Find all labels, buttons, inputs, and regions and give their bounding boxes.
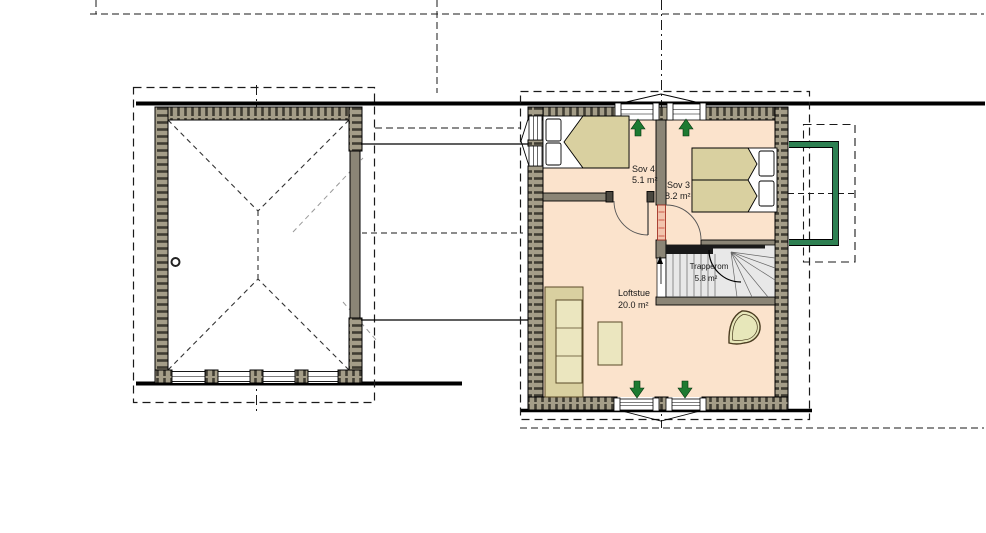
house-wall-west-2 bbox=[528, 140, 543, 146]
sofa-cushions bbox=[556, 300, 582, 383]
garage-wall-east-top bbox=[349, 107, 362, 151]
garage-wall-south-3 bbox=[250, 370, 263, 383]
window-south-2 bbox=[668, 399, 702, 410]
wall-center-stub bbox=[656, 240, 666, 258]
room-area-sov3: 8.2 m² bbox=[665, 191, 691, 201]
pillow bbox=[759, 151, 774, 176]
window-west-2 bbox=[529, 146, 542, 166]
duvet bbox=[692, 148, 757, 180]
window-jamb bbox=[653, 103, 659, 120]
room-label-sov4: Sov 4 bbox=[632, 164, 655, 174]
garage bbox=[134, 88, 529, 403]
floor-plan-canvas: Sov 4 5.1 m² Sov 3 8.2 m² Loftstue 20.0 … bbox=[0, 0, 986, 533]
room-label-loftstue: Loftstue bbox=[618, 288, 650, 298]
garage-wall-north bbox=[155, 107, 362, 120]
room-label-sov3: Sov 3 bbox=[667, 180, 690, 190]
door-jamb bbox=[647, 192, 654, 203]
garage-wall-west bbox=[155, 107, 168, 383]
room-area-loftstue: 20.0 m² bbox=[618, 300, 649, 310]
garage-wall-south-2 bbox=[205, 370, 218, 383]
room-area-sov4: 5.1 m² bbox=[632, 175, 658, 185]
door-leaf-sov3 bbox=[658, 205, 666, 240]
window-jamb bbox=[614, 398, 620, 411]
floor-drain-icon bbox=[172, 258, 180, 266]
door-jamb bbox=[606, 192, 613, 203]
window-jamb bbox=[666, 398, 672, 411]
window-jamb bbox=[667, 103, 673, 120]
window-south-1 bbox=[617, 399, 655, 410]
window-jamb bbox=[653, 398, 659, 411]
stair-header-line bbox=[713, 245, 765, 249]
pillow bbox=[546, 143, 561, 165]
house-wall-west-3 bbox=[528, 166, 543, 397]
bed-sov4 bbox=[543, 116, 629, 168]
house-wall-south-2 bbox=[702, 397, 788, 410]
house-wall-west-1 bbox=[528, 107, 543, 116]
wall-sov4-loftstue bbox=[543, 193, 612, 201]
bed-sov3 bbox=[692, 148, 777, 212]
house bbox=[521, 92, 810, 422]
garage-side-door bbox=[350, 151, 360, 318]
coffee-table bbox=[598, 322, 622, 365]
window-west-1 bbox=[529, 116, 542, 140]
floor-plan-page: Sov 4 5.1 m² Sov 3 8.2 m² Loftstue 20.0 … bbox=[0, 0, 986, 533]
garage-floor bbox=[155, 107, 362, 383]
wall-trapperom-south bbox=[656, 297, 775, 305]
pillow bbox=[546, 119, 561, 141]
walkway-roof-edges bbox=[361, 144, 528, 320]
pillow bbox=[759, 181, 774, 206]
sofa bbox=[545, 287, 583, 397]
garage-wall-south-5 bbox=[338, 370, 362, 383]
room-label-trapperom: Trapperom bbox=[690, 262, 729, 271]
duvet bbox=[692, 180, 757, 212]
room-area-trapperom: 5.8 m² bbox=[695, 274, 718, 283]
window-jamb bbox=[700, 103, 706, 120]
window-jamb bbox=[700, 398, 706, 411]
house-wall-south-1 bbox=[528, 397, 617, 410]
stair-header bbox=[666, 245, 713, 254]
window-swing-south bbox=[622, 411, 700, 421]
garage-wall-south-1 bbox=[155, 370, 172, 383]
stairs bbox=[657, 245, 775, 297]
garage-wall-south-4 bbox=[295, 370, 308, 383]
